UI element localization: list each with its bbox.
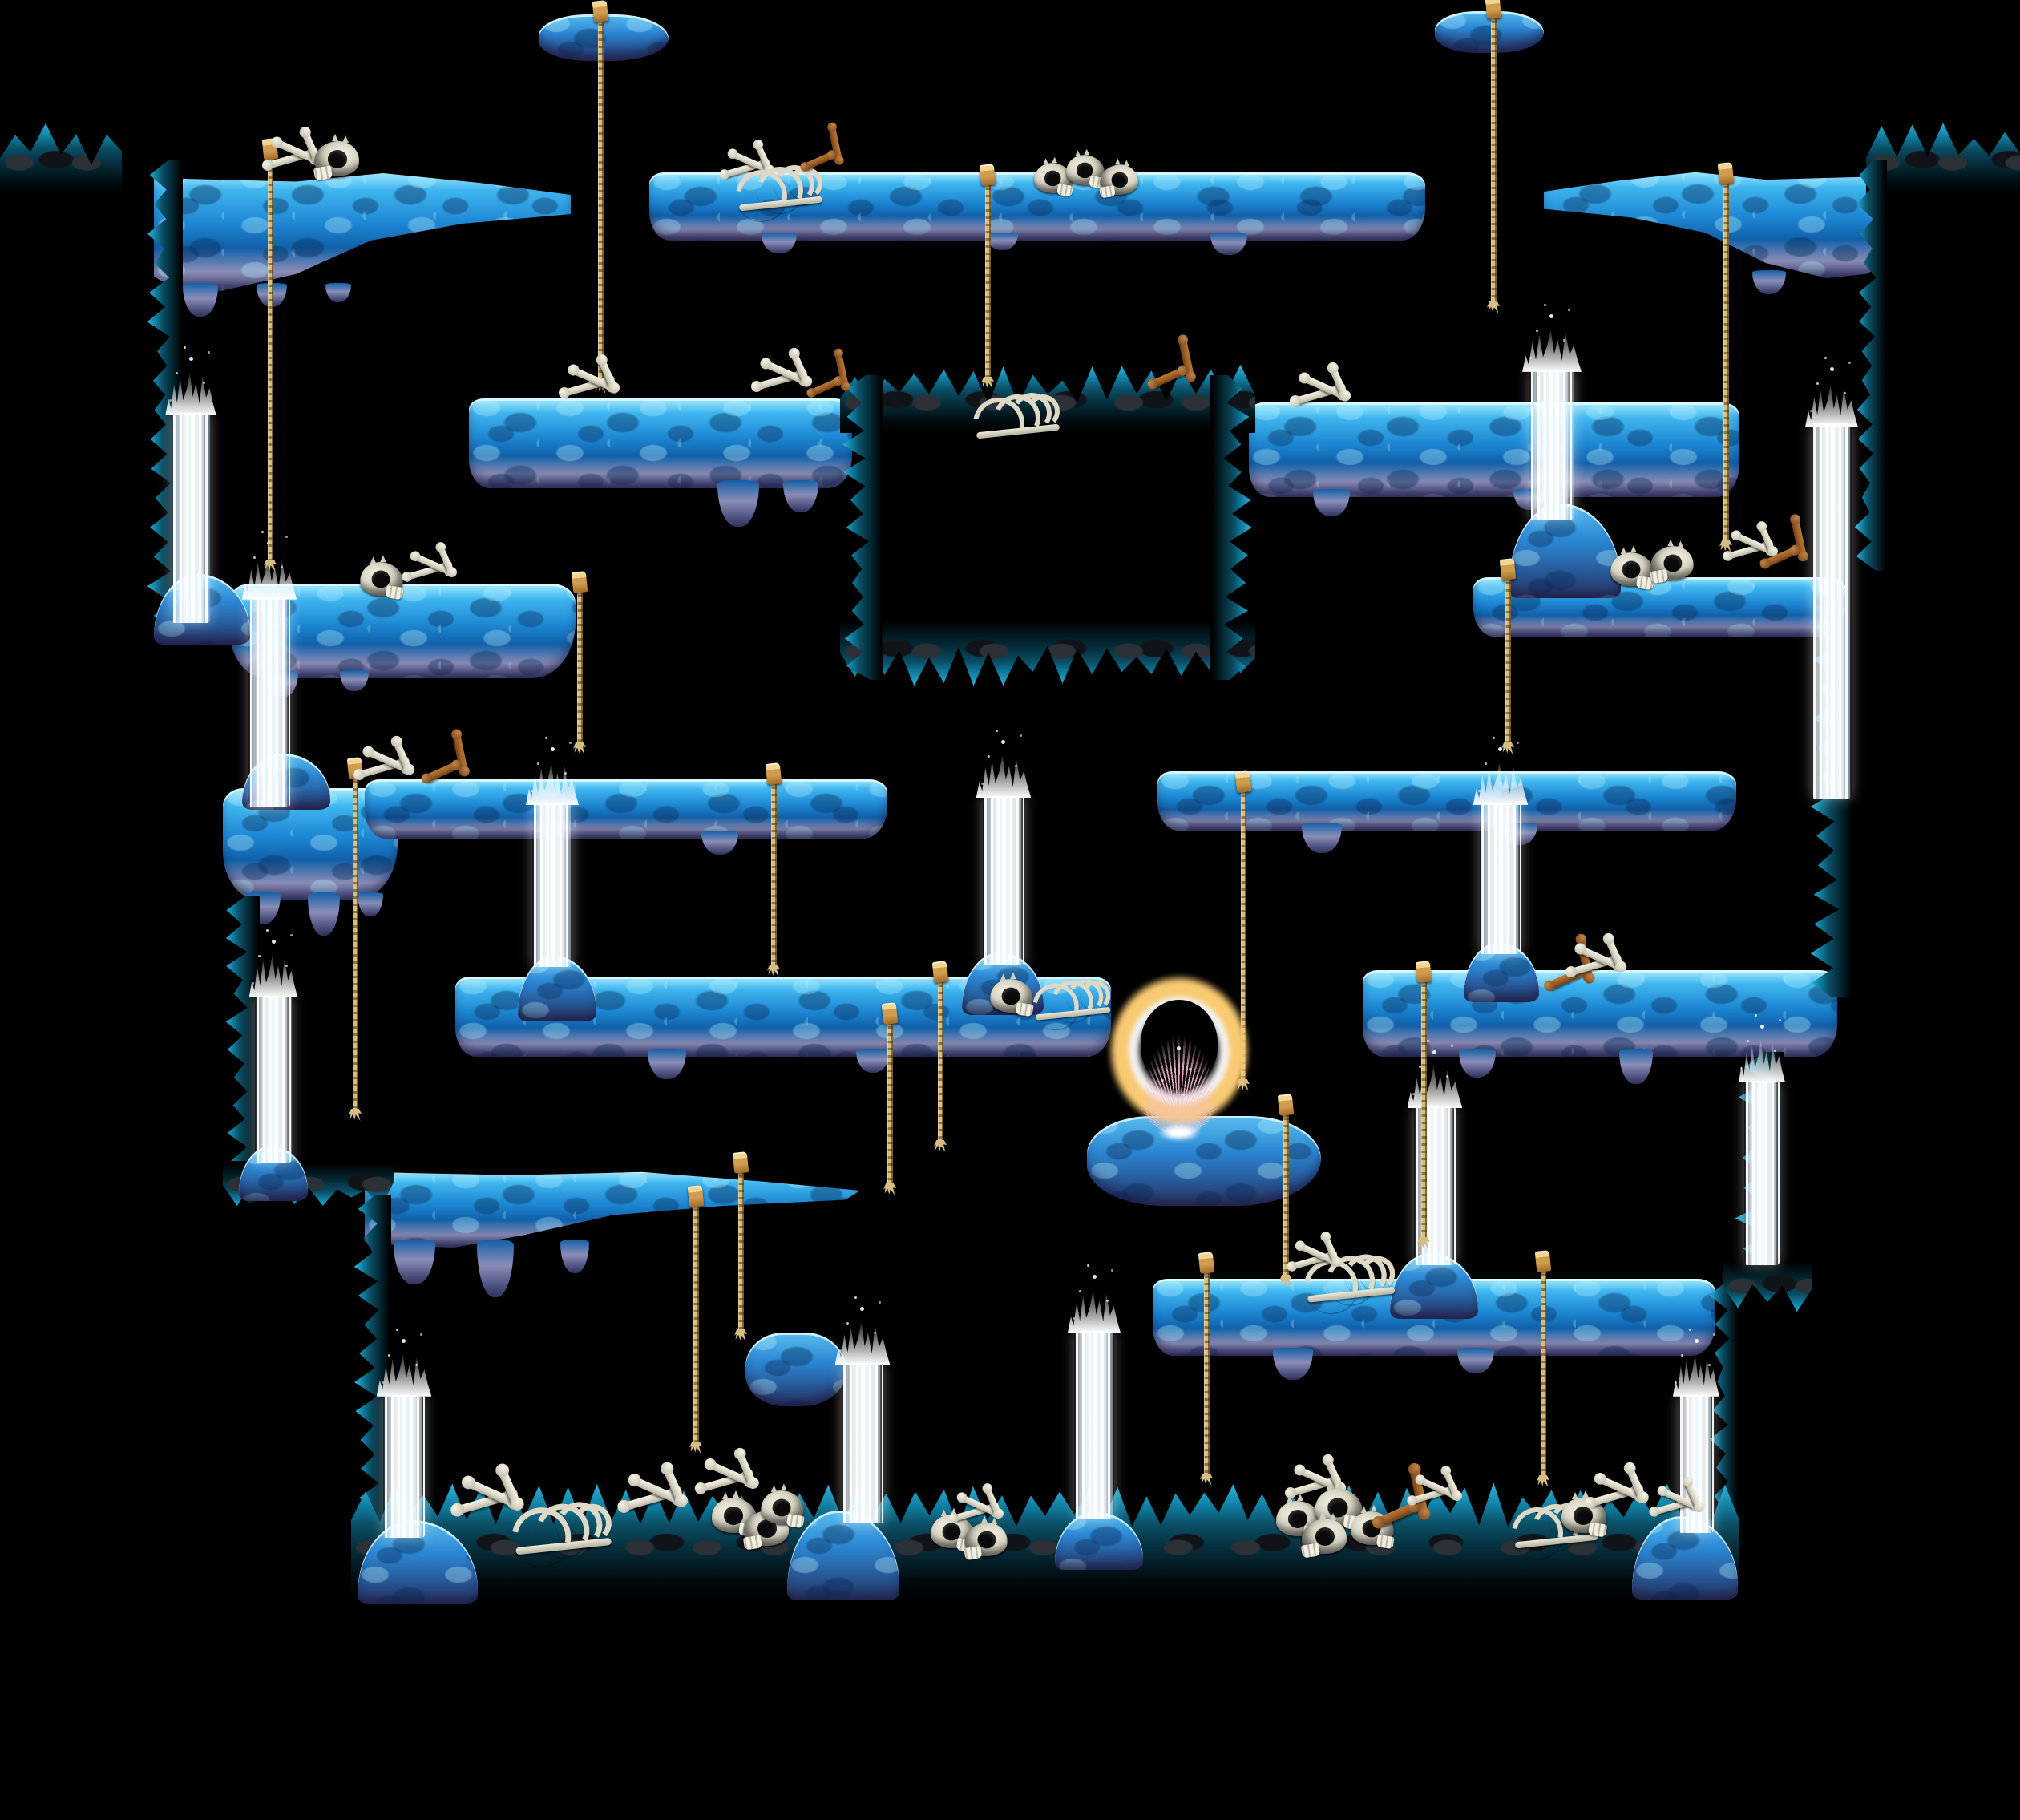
skull-spike [941, 1509, 947, 1516]
brown-bone [1762, 546, 1799, 568]
climbing-rope[interactable] [1723, 181, 1729, 542]
skull-spike [370, 556, 377, 564]
skull-spike [1052, 157, 1057, 164]
skull-spike [1621, 547, 1627, 554]
brown-bone-icon [1757, 531, 1808, 582]
cave-wall-spikes [1866, 119, 2020, 196]
rock-drip [1752, 270, 1786, 294]
bone-pile-icon [561, 369, 627, 407]
climbing-rope[interactable] [1283, 1113, 1289, 1276]
climbing-rope[interactable] [985, 183, 991, 378]
climbing-rope[interactable] [738, 1171, 744, 1331]
cave-wall-spikes [0, 119, 122, 196]
skull-spike [1084, 149, 1089, 156]
climbing-rope[interactable] [1505, 577, 1511, 744]
bone-pile-icon [620, 1478, 696, 1523]
bone-pile-icon [1292, 377, 1358, 415]
skull-icon [1610, 552, 1653, 586]
rock-drip [477, 1240, 514, 1297]
portal[interactable] [1119, 985, 1239, 1139]
geyser-water-column [842, 1363, 883, 1523]
skull-spike [1668, 540, 1675, 547]
brown-bone-icon [1145, 351, 1196, 402]
skull-icon [1100, 164, 1138, 194]
climbing-rope[interactable] [598, 19, 604, 383]
skull-spike [733, 1490, 739, 1498]
ribcage-icon [973, 393, 1073, 443]
bone-pile-icon [1409, 1478, 1469, 1513]
portal-base-flare [1148, 1120, 1210, 1145]
bone-pile-icon [404, 555, 463, 589]
climbing-rope[interactable] [1421, 980, 1427, 1239]
rock-drip [1302, 823, 1342, 853]
cave-level-map [0, 0, 2020, 1820]
skull-teeth [1056, 184, 1073, 196]
skull-teeth [385, 585, 403, 600]
climbing-rope[interactable] [1541, 1269, 1546, 1477]
rock-drip [560, 1240, 589, 1273]
brown-bone-icon [418, 746, 470, 797]
brown-bone [802, 151, 835, 171]
skull-icon [990, 979, 1032, 1013]
platform [365, 1171, 860, 1248]
bone-pile-icon [1651, 1490, 1711, 1524]
brown-bone [809, 377, 842, 397]
skull-spike [1572, 1492, 1578, 1499]
skull-teeth [1015, 1002, 1033, 1017]
brown-bone-icon [798, 137, 844, 184]
bone-pile-icon [1289, 1244, 1348, 1279]
rock-drip [783, 480, 818, 512]
geyser-water-column [383, 1395, 425, 1538]
rock-drip [394, 1240, 435, 1284]
skull-spike [332, 134, 338, 141]
platform [469, 398, 852, 488]
geyser-water-column [1480, 803, 1521, 954]
rock-drip [340, 670, 369, 691]
rock-drip [856, 1049, 890, 1073]
platform [1544, 170, 1881, 278]
skull-spike [781, 1484, 787, 1491]
rock-drip [1210, 233, 1247, 255]
climbing-rope[interactable] [771, 782, 777, 966]
cave-wall-spikes [840, 617, 1255, 690]
skull-spike [342, 135, 349, 143]
skull-spike [771, 1485, 778, 1492]
skull-icon [360, 562, 402, 596]
skull-spike [1630, 546, 1637, 553]
skull-spike [380, 556, 386, 563]
rock-drip [648, 1049, 686, 1079]
skull-spike [1044, 158, 1049, 164]
climbing-rope[interactable] [1491, 16, 1497, 303]
rock-drip [1313, 489, 1350, 516]
skull-spike [1010, 973, 1016, 980]
geyser-water-column [1529, 370, 1574, 520]
skull-spike [1124, 160, 1129, 166]
skull-teeth [786, 1514, 804, 1528]
geyser-water-column [983, 796, 1024, 965]
brown-bone [1149, 366, 1186, 389]
rock-drip [701, 831, 738, 855]
rock-drip [1459, 1049, 1496, 1078]
bone-pile-icon [951, 1496, 1010, 1531]
skull-spike [1337, 1481, 1343, 1488]
rock-drip [717, 480, 759, 527]
skull-spike [1319, 1511, 1326, 1519]
geyser-water-column [1744, 1081, 1780, 1265]
geyser-water-column [532, 803, 572, 967]
skull-spike [722, 1492, 729, 1499]
platform [745, 1333, 846, 1406]
skull-icon [1650, 546, 1693, 580]
bone-pile-icon [1587, 1478, 1656, 1518]
climbing-rope[interactable] [693, 1204, 699, 1443]
rock-drip [1619, 1049, 1653, 1084]
geyser-water-column [1812, 423, 1852, 799]
rock-drip [762, 233, 797, 253]
climbing-rope[interactable] [1204, 1271, 1210, 1475]
brown-bone-icon [804, 363, 850, 410]
skull-spike [1076, 150, 1081, 156]
skull-icon [1302, 1519, 1347, 1554]
skull-teeth [1588, 1522, 1608, 1537]
bone-pile-icon [1568, 948, 1634, 986]
ribcage-icon [512, 1502, 627, 1559]
skull-spike [1361, 1506, 1368, 1513]
platform [154, 171, 571, 291]
rock-drip [325, 283, 351, 302]
rock-drip [1457, 1348, 1494, 1373]
geyser-water-column [1074, 1331, 1114, 1519]
skull-icon [314, 141, 359, 176]
rock-drip [358, 892, 383, 916]
geyser-water-column [255, 996, 292, 1163]
bone-pile-icon [356, 750, 422, 789]
skull-spike [1330, 1513, 1336, 1520]
portal-sparkles [1177, 1046, 1181, 1050]
skull-spike [1677, 540, 1683, 548]
skull-icon [761, 1490, 803, 1524]
platform [1249, 402, 1739, 497]
skull-spike [1000, 973, 1007, 981]
geyser-water-column [248, 597, 290, 807]
skull-icon [1066, 155, 1105, 184]
platform [539, 14, 669, 61]
climbing-rope[interactable] [577, 590, 583, 744]
rock-drip [183, 283, 218, 317]
climbing-rope[interactable] [938, 980, 943, 1142]
skull-spike [1115, 159, 1121, 165]
climbing-rope[interactable] [353, 776, 358, 1110]
climbing-rope[interactable] [887, 1021, 893, 1185]
rock-drip [986, 233, 1018, 250]
rock-drip [308, 892, 340, 936]
brown-bone [423, 761, 460, 783]
portal-light-rays [1131, 997, 1227, 1135]
skull-spike [1327, 1483, 1333, 1490]
skull-spike [1297, 1494, 1303, 1501]
skull-spike [1287, 1495, 1293, 1503]
geyser-water-column [172, 413, 210, 623]
rock-drip [1273, 1348, 1313, 1380]
climbing-rope[interactable] [268, 157, 273, 561]
